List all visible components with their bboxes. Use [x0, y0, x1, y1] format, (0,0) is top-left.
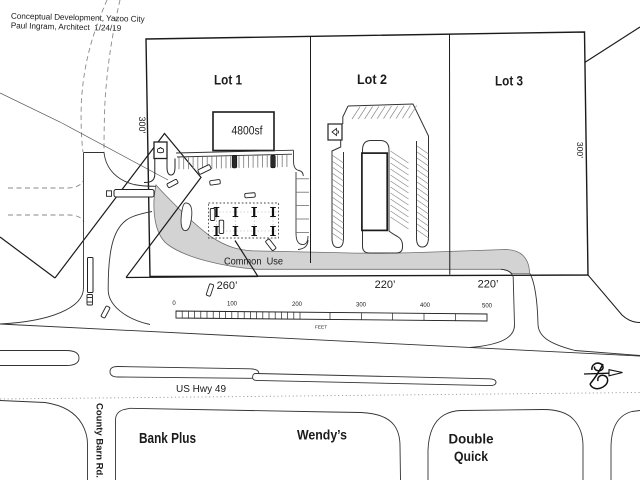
svg-text:100: 100 — [227, 302, 238, 308]
svg-text:0: 0 — [172, 301, 176, 307]
svg-text:Lot 3: Lot 3 — [495, 73, 523, 89]
svg-text:400: 400 — [420, 303, 431, 309]
svg-text:500: 500 — [482, 304, 493, 310]
svg-text:US Hwy 49: US Hwy 49 — [176, 384, 226, 395]
svg-text:300: 300 — [356, 303, 367, 309]
svg-text:Wendy’s: Wendy’s — [297, 427, 347, 443]
svg-text:300’: 300’ — [575, 142, 585, 158]
svg-text:Lot 1: Lot 1 — [214, 72, 242, 88]
svg-text:260’: 260’ — [217, 280, 238, 292]
svg-text:200: 200 — [292, 302, 303, 308]
svg-text:220’: 220’ — [478, 279, 499, 291]
svg-text:Quick: Quick — [454, 448, 488, 464]
svg-text:Paul Ingram, Architect 1/24/1: Paul Ingram, Architect 1/24/19 — [11, 21, 122, 33]
svg-text:300’: 300’ — [137, 116, 147, 133]
svg-text:Double: Double — [449, 431, 494, 447]
svg-text:Lot 2: Lot 2 — [357, 71, 387, 87]
svg-text:4800sf: 4800sf — [232, 126, 264, 138]
svg-text:Common Use: Common Use — [224, 257, 283, 268]
svg-text:Bank Plus: Bank Plus — [139, 431, 196, 447]
svg-text:County Barn Rd.: County Barn Rd. — [94, 403, 105, 478]
svg-text:FEET: FEET — [315, 325, 327, 331]
svg-text:220’: 220’ — [375, 279, 396, 291]
